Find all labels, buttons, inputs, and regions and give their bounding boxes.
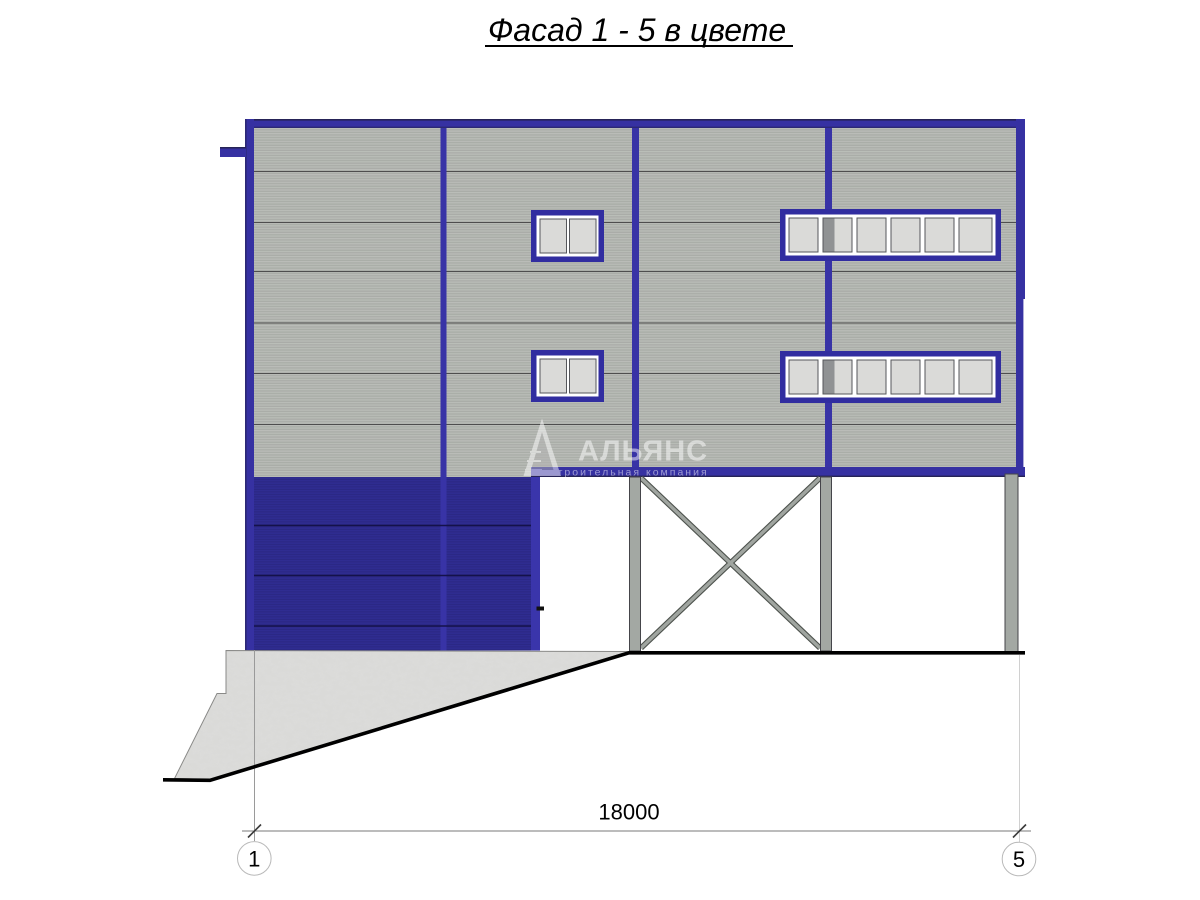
svg-text:Фасад 1 - 5 в цвете: Фасад 1 - 5 в цвете (488, 12, 786, 48)
svg-text:1: 1 (248, 846, 260, 871)
svg-text:5: 5 (1013, 847, 1025, 872)
svg-text:строительная компания: строительная компания (550, 467, 708, 479)
svg-text:АЛЬЯНС: АЛЬЯНС (578, 436, 708, 468)
svg-text:18000: 18000 (598, 800, 659, 825)
